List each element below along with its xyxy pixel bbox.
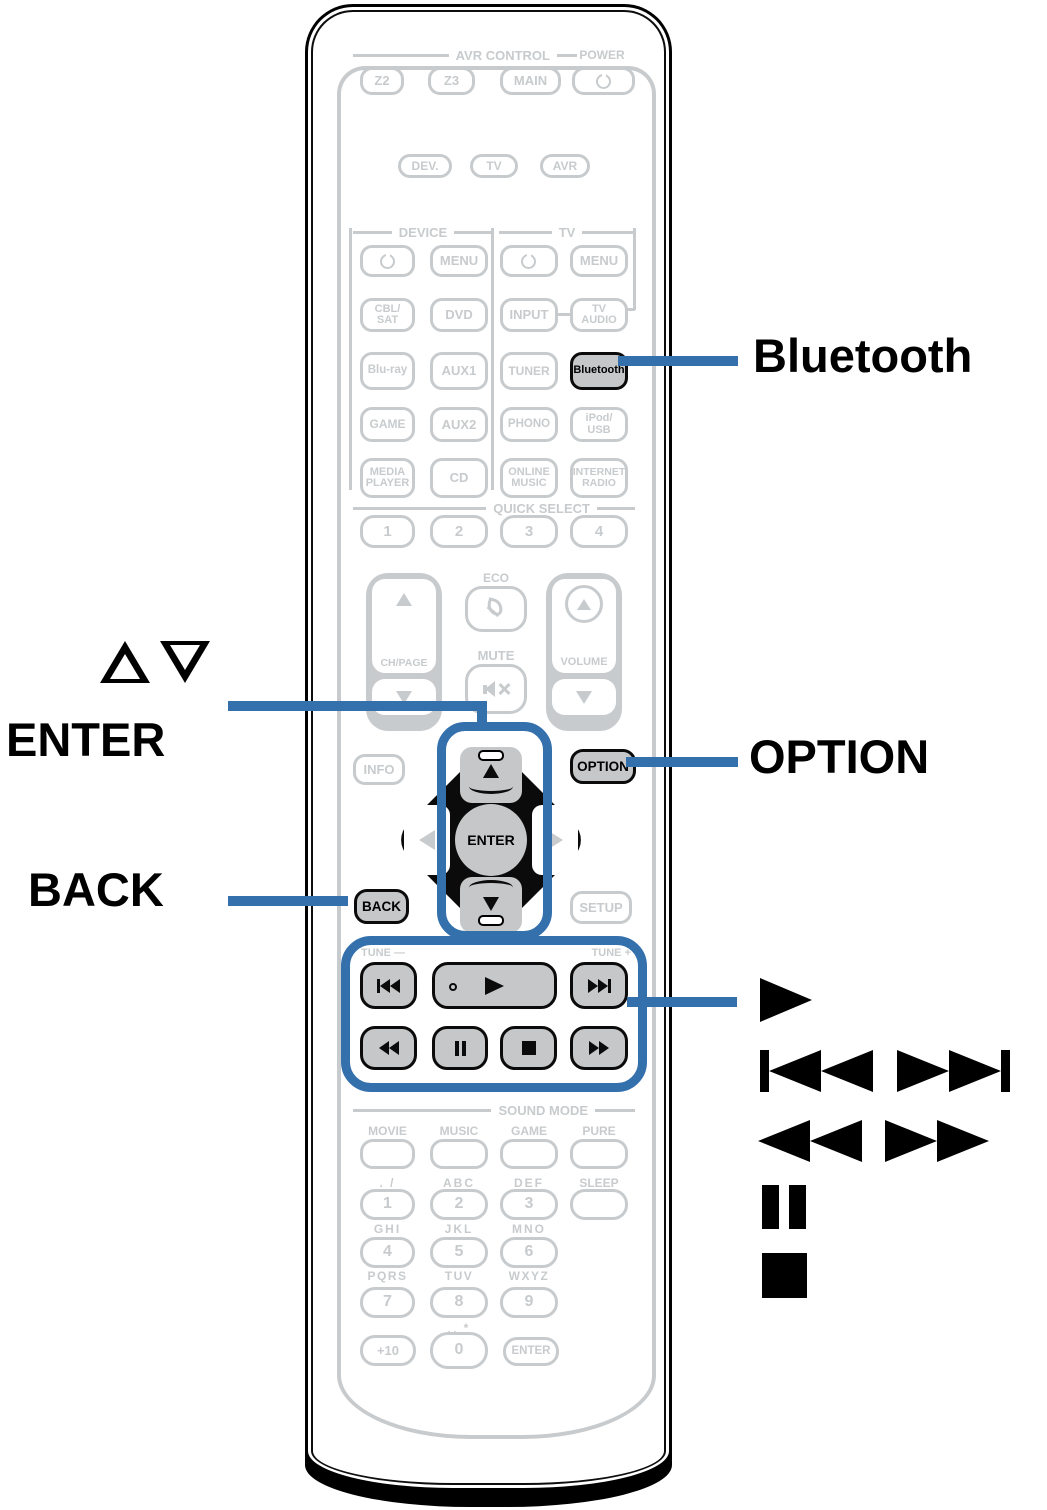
play-callout-icon <box>760 978 812 1022</box>
cursor-updown-callout: △▽ <box>100 641 210 684</box>
manual-diagram: AVR CONTROL POWER Z2 Z3 MAIN DEV. TV AVR… <box>0 0 1047 1510</box>
sound-mode-header: SOUND MODE <box>353 1103 635 1118</box>
aux2-button[interactable]: AUX2 <box>430 407 488 442</box>
key2-letters-label: ABC <box>430 1177 488 1189</box>
sleep-label: SLEEP <box>570 1177 628 1189</box>
tv-menu-button[interactable]: MENU <box>570 245 628 277</box>
mute-icon <box>483 681 510 697</box>
avr-control-header: AVR CONTROL <box>353 48 577 63</box>
device-group-bracket-right <box>491 228 494 490</box>
power-button[interactable] <box>572 67 635 95</box>
tv-power-icon <box>521 253 537 269</box>
key3-letters-label: DEF <box>500 1177 558 1189</box>
option-callout-line <box>626 757 738 767</box>
device-mode-button[interactable]: DEV. <box>398 154 452 178</box>
cursor-callout-line-h <box>228 701 487 711</box>
device-header: DEVICE <box>353 225 493 240</box>
plus10-button[interactable]: +10 <box>360 1335 416 1366</box>
quick-select-header: QUICK SELECT <box>353 501 635 516</box>
volume-label: VOLUME <box>560 657 607 668</box>
key5-letters-label: JKL <box>430 1223 488 1235</box>
transport-callout-line <box>627 997 737 1007</box>
back-callout-label: BACK <box>28 866 164 913</box>
channel-page-up[interactable]: CH/PAGE <box>372 579 436 673</box>
device-power-icon <box>380 253 396 269</box>
eco-label: ECO <box>465 572 527 584</box>
aux1-button[interactable]: AUX1 <box>430 352 488 390</box>
cd-button[interactable]: CD <box>430 458 488 498</box>
movie-label: MOVIE <box>360 1125 415 1137</box>
channel-up-icon <box>396 593 412 606</box>
key-6-button[interactable]: 6 <box>500 1237 558 1268</box>
volume-down[interactable] <box>552 679 616 715</box>
keypad-enter-button[interactable]: ENTER <box>503 1337 559 1366</box>
bluetooth-callout-label: Bluetooth <box>753 332 972 379</box>
cursor-left-icon <box>419 830 435 850</box>
device-header-label: DEVICE <box>392 225 454 240</box>
key6-letters-label: MNO <box>500 1223 558 1235</box>
media-player-button[interactable]: MEDIA PLAYER <box>360 458 415 498</box>
power-header-label: POWER <box>569 49 635 61</box>
bluetooth-callout-line <box>618 356 738 366</box>
music-label: MUSIC <box>430 1125 488 1137</box>
key-2-button[interactable]: 2 <box>430 1189 488 1220</box>
online-music-button[interactable]: ONLINE MUSIC <box>500 458 558 498</box>
tv-audio-button[interactable]: TV AUDIO <box>570 298 628 332</box>
volume-down-icon <box>576 691 592 704</box>
pure-label: PURE <box>570 1125 628 1137</box>
key4-letters-label: GHI <box>360 1223 415 1235</box>
quick-select-header-label: QUICK SELECT <box>486 501 597 516</box>
cursor-callout-line-v <box>477 703 487 729</box>
phono-button[interactable]: PHONO <box>500 407 558 442</box>
key8-letters-label: TUV <box>430 1270 488 1282</box>
stop-callout-icon <box>762 1253 807 1298</box>
option-callout-label: OPTION <box>749 733 929 780</box>
skip-callout-icons <box>760 1050 1010 1092</box>
key-7-button[interactable]: 7 <box>360 1287 415 1318</box>
key-0-button[interactable]: 0 <box>430 1332 488 1369</box>
device-power-button[interactable] <box>360 245 415 277</box>
internet-radio-button[interactable]: INTERNET RADIO <box>570 458 628 498</box>
ch-page-label: CH/PAGE <box>380 658 427 669</box>
sleep-button[interactable] <box>570 1189 628 1220</box>
tv-header-label: TV <box>552 225 583 240</box>
key1-letters-label: . / <box>360 1177 415 1189</box>
volume-up-icon <box>565 585 603 623</box>
power-icon <box>596 73 612 89</box>
avr-control-header-label: AVR CONTROL <box>449 48 557 63</box>
pure-button[interactable] <box>570 1139 628 1169</box>
quick-select-2-button[interactable]: 2 <box>430 515 488 548</box>
ipod-usb-button[interactable]: iPod/ USB <box>570 407 628 442</box>
tuner-button[interactable]: TUNER <box>500 352 558 390</box>
zone2-button[interactable]: Z2 <box>360 67 404 95</box>
cbl-sat-button[interactable]: CBL/ SAT <box>360 298 415 332</box>
triangle-down-icon <box>160 641 210 684</box>
device-group-bracket-left <box>349 228 352 490</box>
key-1-button[interactable]: 1 <box>360 1189 415 1220</box>
sound-mode-header-label: SOUND MODE <box>491 1103 595 1118</box>
movie-button[interactable] <box>360 1139 415 1169</box>
quick-select-4-button[interactable]: 4 <box>570 515 628 548</box>
key7-letters-label: PQRS <box>360 1270 415 1282</box>
key-3-button[interactable]: 3 <box>500 1189 558 1220</box>
volume-up[interactable]: VOLUME <box>552 579 616 673</box>
game-sound-button[interactable] <box>500 1139 558 1169</box>
tv-mode-button[interactable]: TV <box>470 154 518 178</box>
eco-leaf-icon <box>484 597 508 621</box>
key-5-button[interactable]: 5 <box>430 1237 488 1268</box>
tv-header: TV <box>499 225 635 240</box>
volume-rocker[interactable]: VOLUME <box>546 573 622 731</box>
pause-callout-icon <box>762 1185 806 1229</box>
avr-mode-button[interactable]: AVR <box>540 154 590 178</box>
dvd-button[interactable]: DVD <box>430 298 488 332</box>
game-button[interactable]: GAME <box>360 407 415 442</box>
triangle-up-icon <box>100 641 150 684</box>
mute-label: MUTE <box>465 649 527 662</box>
key-8-button[interactable]: 8 <box>430 1287 488 1318</box>
back-button[interactable]: BACK <box>354 889 409 924</box>
tv-power-button[interactable] <box>500 245 558 277</box>
device-menu-button[interactable]: MENU <box>430 245 488 277</box>
quick-select-1-button[interactable]: 1 <box>360 515 415 548</box>
eco-button[interactable] <box>465 586 527 632</box>
enter-callout-label: ENTER <box>6 716 165 763</box>
tv-group-bracket-right <box>633 228 636 310</box>
key9-letters-label: WXYZ <box>500 1270 558 1282</box>
setup-button[interactable]: SETUP <box>570 891 632 924</box>
input-button[interactable]: INPUT <box>500 298 558 332</box>
blu-ray-button[interactable]: Blu-ray <box>360 352 415 390</box>
quick-select-3-button[interactable]: 3 <box>500 515 558 548</box>
main-zone-button[interactable]: MAIN <box>500 67 561 95</box>
cursor-highlight-frame <box>437 722 552 940</box>
key-9-button[interactable]: 9 <box>500 1287 558 1318</box>
key-4-button[interactable]: 4 <box>360 1237 415 1268</box>
music-button[interactable] <box>430 1139 488 1169</box>
zone3-button[interactable]: Z3 <box>428 67 475 95</box>
back-callout-line <box>228 896 348 906</box>
transport-highlight-frame <box>341 936 647 1092</box>
scan-callout-icons <box>758 1120 989 1162</box>
game-label: GAME <box>500 1125 558 1137</box>
